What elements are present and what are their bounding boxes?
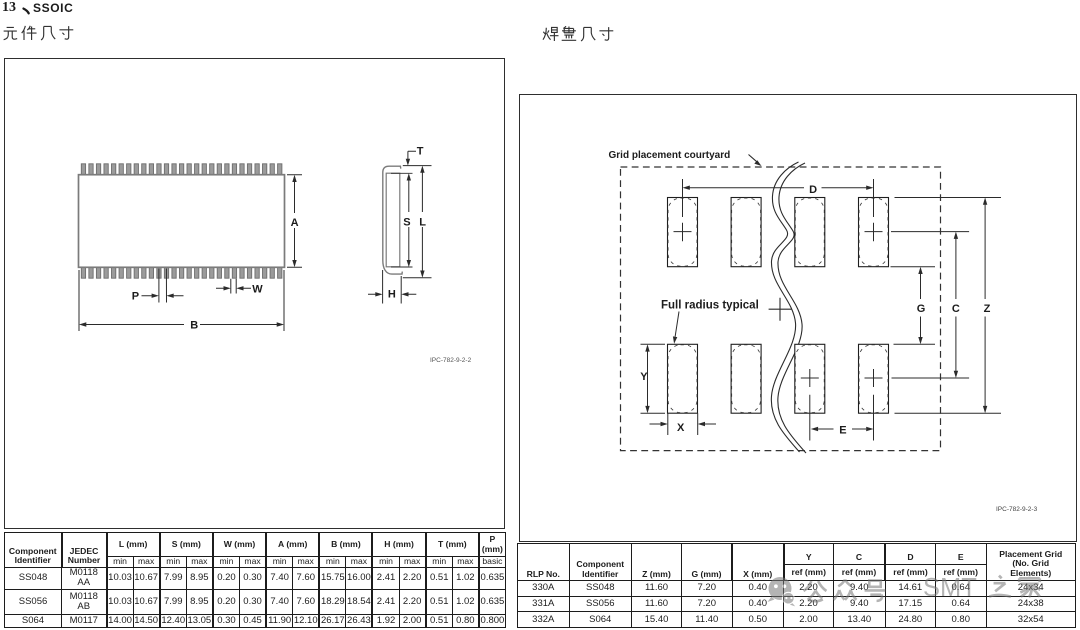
svg-text:W: W [252,283,263,295]
svg-text:Grid placement courtyard: Grid placement courtyard [608,150,730,161]
svg-text:Y: Y [640,371,648,383]
svg-text:H: H [388,289,396,301]
svg-text:P: P [132,291,139,303]
svg-text:G: G [916,303,925,315]
svg-text:B: B [190,319,198,331]
svg-text:A: A [291,217,299,229]
svg-text:T: T [417,146,424,158]
svg-text:X: X [677,422,685,434]
svg-text:Full radius typical: Full radius typical [661,300,759,312]
svg-text:C: C [951,303,959,315]
svg-text:S: S [403,217,410,229]
svg-text:Z: Z [983,303,990,315]
svg-text:E: E [839,424,846,436]
svg-text:L: L [419,217,426,229]
svg-text:SMT: SMT [923,574,977,602]
svg-text:D: D [809,184,817,196]
